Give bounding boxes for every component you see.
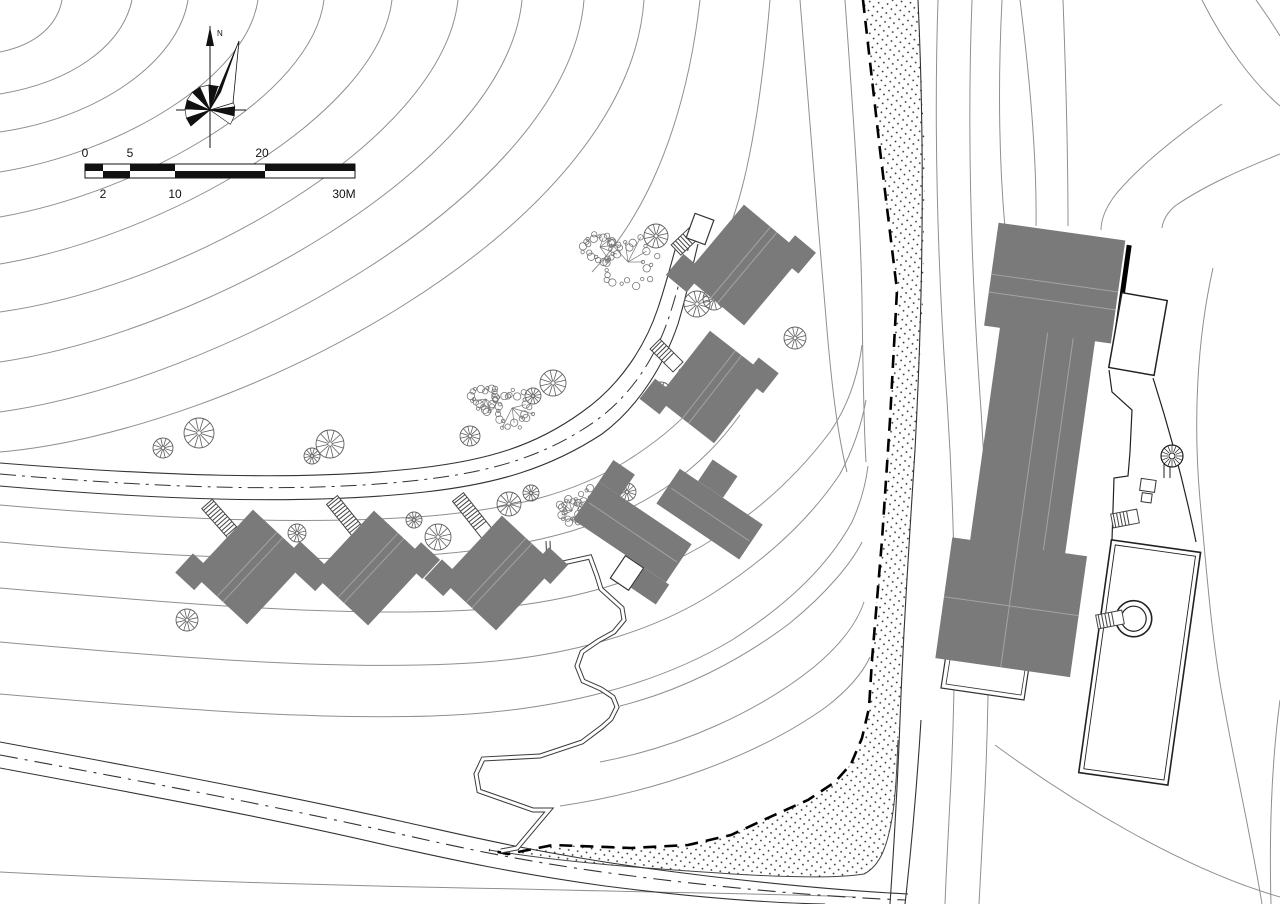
scale-segment bbox=[85, 171, 103, 178]
scale-segment bbox=[85, 164, 103, 171]
scale-segment bbox=[265, 164, 355, 171]
service-box bbox=[1140, 478, 1157, 492]
scale-label: 30M bbox=[332, 187, 355, 201]
scale-segment bbox=[175, 164, 265, 171]
site-plan: N 052021030M bbox=[0, 0, 1280, 904]
scale-segment bbox=[103, 171, 130, 178]
scale-segment bbox=[130, 164, 175, 171]
scale-segment bbox=[103, 164, 130, 171]
main-building-bottom-block bbox=[935, 537, 1087, 677]
scale-label: 2 bbox=[100, 187, 107, 201]
scale-label: 10 bbox=[168, 187, 182, 201]
scale-segment bbox=[175, 171, 265, 178]
scale-label: 20 bbox=[255, 146, 269, 160]
scale-segment bbox=[265, 171, 355, 178]
service-box bbox=[1141, 493, 1152, 503]
scale-segment bbox=[130, 171, 175, 178]
scale-label: 0 bbox=[82, 146, 89, 160]
scale-label: 5 bbox=[127, 146, 134, 160]
north-label: N bbox=[217, 29, 223, 38]
site-plan-canvas: N 052021030M bbox=[0, 0, 1280, 904]
